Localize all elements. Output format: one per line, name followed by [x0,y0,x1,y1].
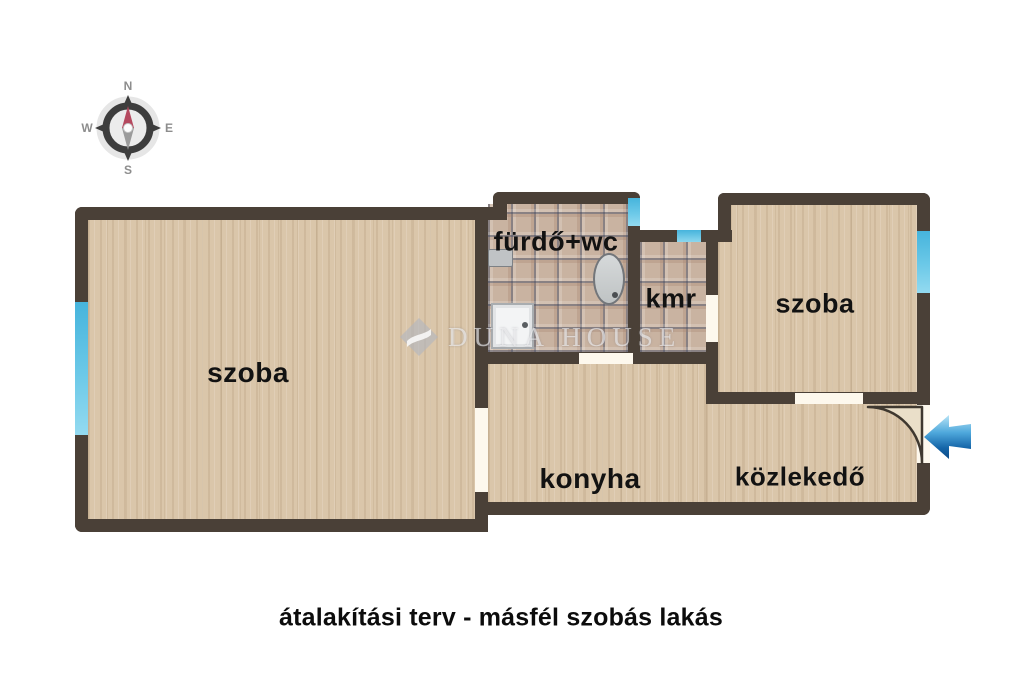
plan-caption: átalakítási terv - másfél szobás lakás [279,604,723,633]
compass-rose-icon: N S W E [81,79,173,177]
plan-overlay: N S W E [0,0,1024,677]
entrance-arrow-icon [924,415,971,459]
room-label-szoba-left: szoba [207,357,289,389]
compass-letter-w: W [81,121,93,135]
door-swing-arc-icon [868,407,922,463]
compass-letter-s: S [124,163,132,177]
floor-plan-canvas: N S W E DUNA HOUSE szoba fürdő+wc kmr sz… [0,0,1024,677]
room-label-furdo-wc: fürdő+wc [494,227,619,258]
room-label-konyha: konyha [539,463,640,495]
room-label-kozlekedo: közlekedő [735,462,865,493]
room-label-kmr: kmr [645,284,696,315]
compass-letter-e: E [165,121,173,135]
room-label-szoba-right: szoba [775,289,854,320]
compass-letter-n: N [124,79,133,93]
